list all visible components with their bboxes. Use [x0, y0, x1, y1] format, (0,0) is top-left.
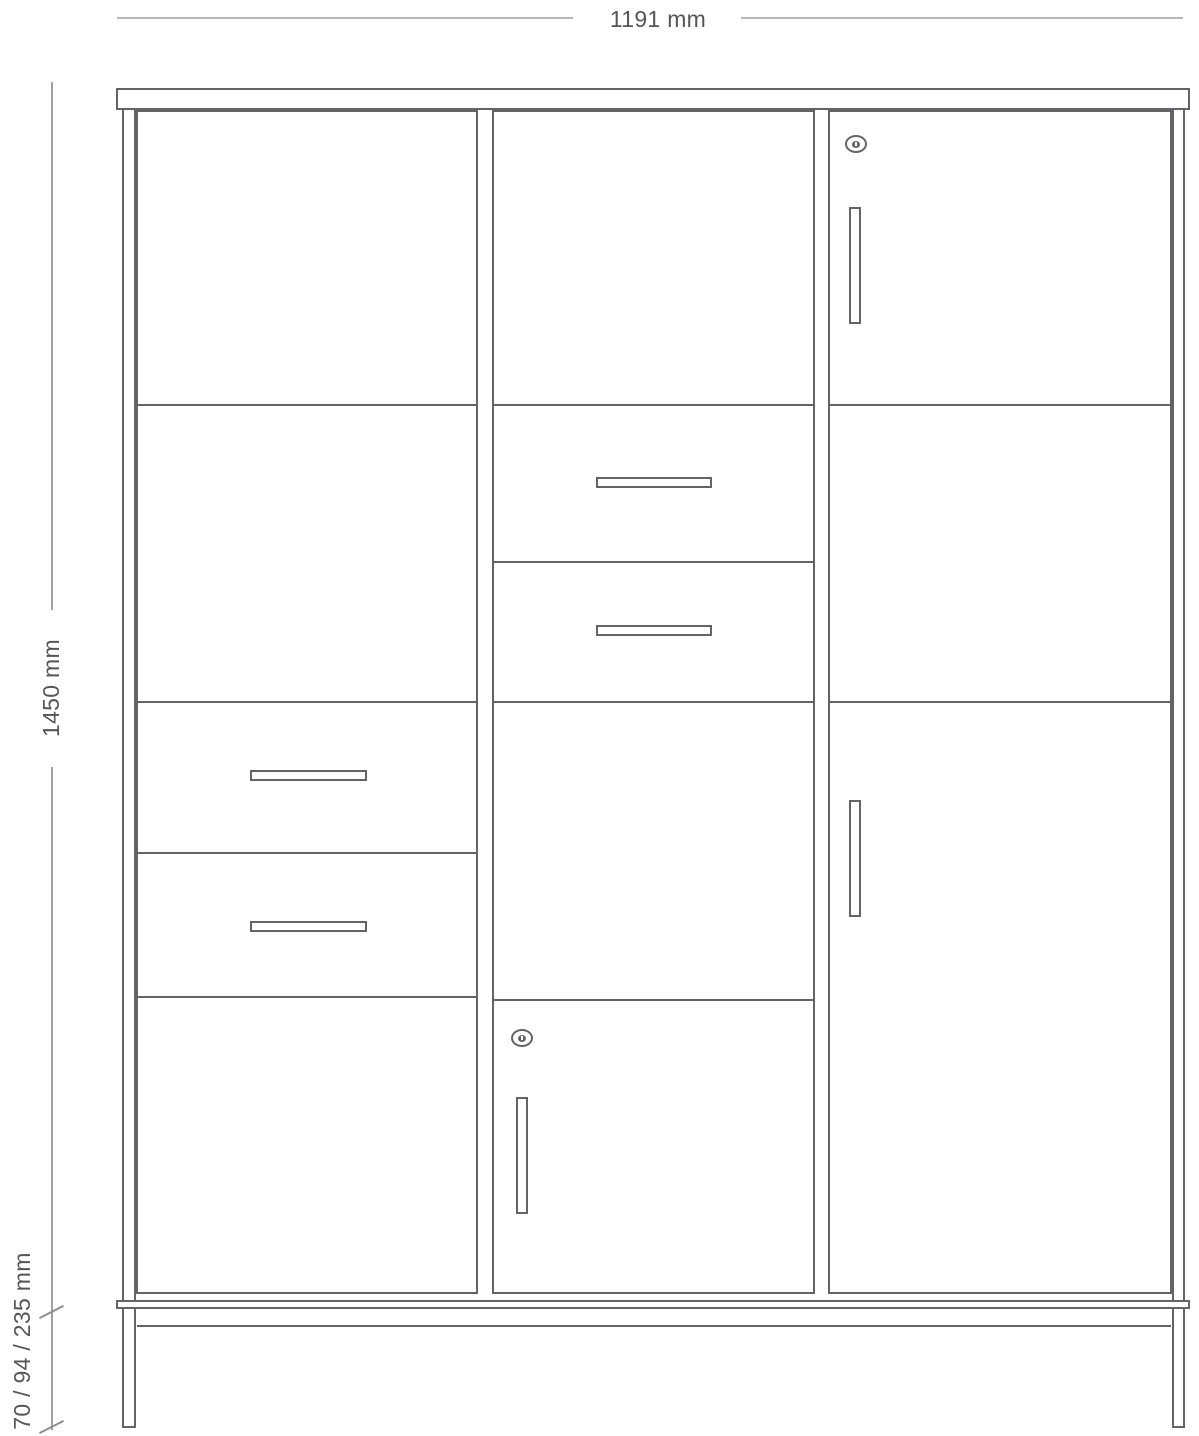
cabinet-technical-drawing: 1191 mm 1450 mm 70 / 94 / 235 mm — [0, 0, 1199, 1436]
bottom-board — [116, 1300, 1190, 1309]
right-bottom-door-handle — [849, 800, 861, 917]
right-top-door-handle — [849, 207, 861, 324]
left-column-shelf-line — [136, 404, 478, 406]
right-leg — [1172, 1309, 1185, 1428]
top-board — [116, 88, 1190, 110]
right-side-panel — [1172, 110, 1185, 1309]
left-leg — [122, 1309, 136, 1428]
height-dimension-line-lower — [51, 767, 53, 1430]
middle-door-top-line — [492, 999, 815, 1001]
width-dimension-line-left — [117, 17, 573, 19]
middle-drawer-2-handle — [596, 625, 712, 636]
width-dimension-label: 1191 mm — [573, 6, 743, 32]
width-dimension-line-right — [741, 17, 1183, 19]
left-drawer-1-handle — [250, 770, 367, 781]
middle-drawer-2-top-line — [492, 561, 815, 563]
right-top-door-lock-keyhole-icon — [852, 141, 860, 148]
middle-door-handle — [516, 1097, 528, 1214]
left-drawer-2-handle — [250, 921, 367, 932]
right-door-top-line — [828, 701, 1172, 703]
height-dimension-line-upper — [51, 82, 53, 610]
height-dimension-label: 1450 mm — [38, 603, 64, 773]
right-top-door-lock — [845, 135, 867, 153]
middle-door-lock-keyhole-icon — [518, 1035, 526, 1042]
base-dimension-label: 70 / 94 / 235 mm — [9, 1231, 35, 1436]
left-drawer-1-top-line — [136, 701, 478, 703]
base-rail — [137, 1325, 1171, 1327]
middle-drawer-1-handle — [596, 477, 712, 488]
left-door-top-line — [136, 996, 478, 998]
left-drawer-2-top-line — [136, 852, 478, 854]
middle-shelf-line — [492, 701, 815, 703]
middle-drawer-1-top-line — [492, 404, 815, 406]
left-side-panel — [122, 110, 136, 1309]
middle-door-lock — [511, 1029, 533, 1047]
right-top-door-bottom-line — [828, 404, 1172, 406]
